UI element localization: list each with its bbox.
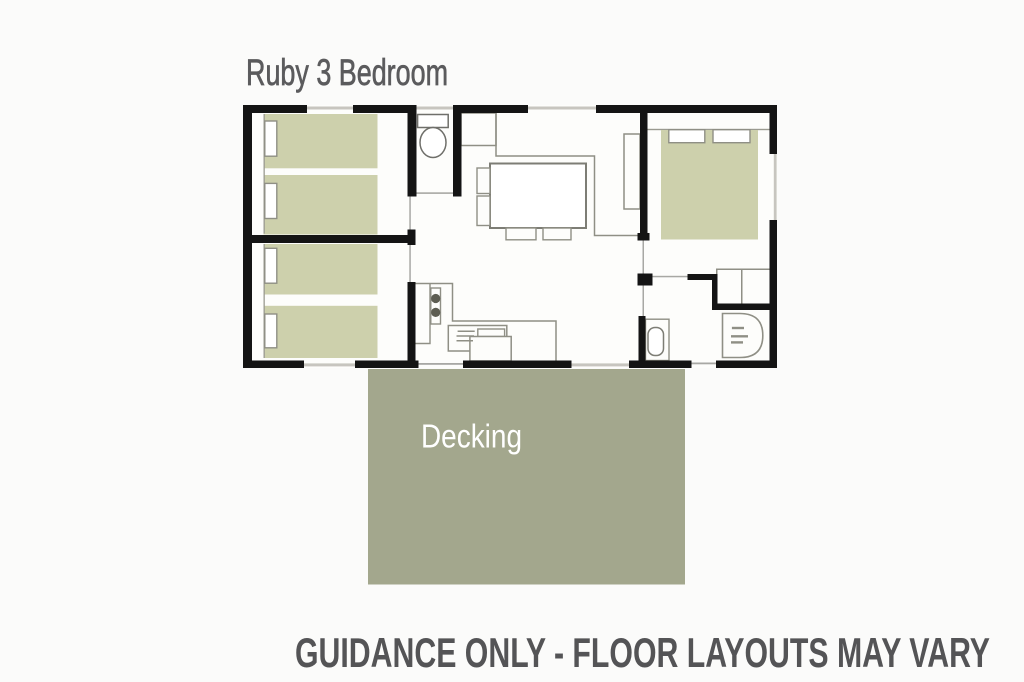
svg-text:Ruby 3 Bedroom: Ruby 3 Bedroom <box>246 52 448 93</box>
svg-text:GUIDANCE ONLY - FLOOR LAYOUTS: GUIDANCE ONLY - FLOOR LAYOUTS MAY VARY <box>295 629 990 676</box>
svg-text:Decking: Decking <box>421 417 522 454</box>
